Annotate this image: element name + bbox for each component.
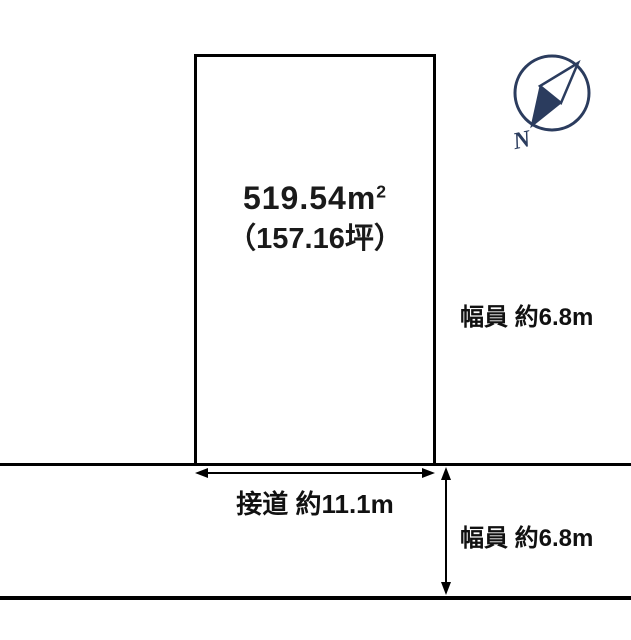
area-square-meters: 519.54m2 [194, 182, 436, 214]
area-superscript: 2 [376, 181, 387, 201]
compass: N [510, 56, 589, 155]
road-line-bottom [0, 596, 631, 600]
land-plot-diagram: 519.54m2 （157.16坪） N 接道 約11.1m 幅員 約6.8m [0, 0, 631, 640]
area-tsubo: （157.16坪） [194, 225, 436, 254]
compass-needle-north [531, 86, 561, 127]
area-label: 519.54m2 （157.16坪） [194, 182, 436, 254]
frontage-label: 接道 約11.1m [165, 484, 465, 521]
compass-needle-tail [540, 63, 578, 103]
frontage-dimension-arrow [195, 468, 435, 478]
compass-north-label: N [510, 126, 535, 156]
plot-boundary [194, 54, 436, 464]
area-value: 519.54m [243, 180, 376, 216]
road-line-top [0, 463, 631, 466]
road-width-label-bottom: 幅員 約6.8m [460, 518, 593, 553]
road-width-label-right: 幅員 約6.8m [460, 297, 593, 332]
compass-circle [515, 56, 589, 130]
